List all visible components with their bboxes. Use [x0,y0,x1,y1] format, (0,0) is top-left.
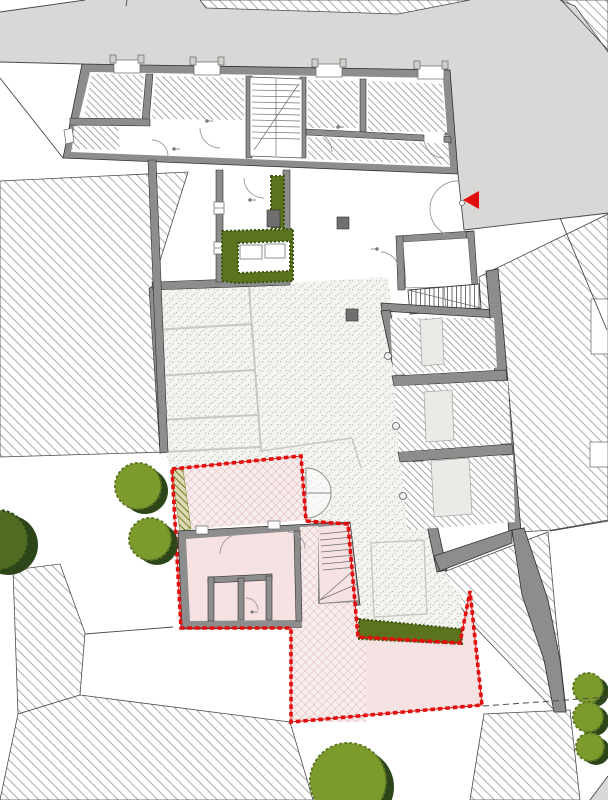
bench [240,245,262,259]
site-plan [0,0,608,800]
bench [265,244,285,258]
east-notch [590,442,608,467]
post [346,309,358,321]
tree [310,743,394,800]
neighbor-southeast-lower [470,710,580,800]
planter [267,210,280,227]
bush [573,702,608,736]
terrace-demolition [292,628,366,722]
room [368,81,446,132]
room [72,126,120,150]
main-building [63,55,458,174]
side-window [64,128,74,144]
tree [115,463,168,514]
tree [0,510,38,575]
neighbor-south [0,695,313,800]
garage-pad [431,458,472,517]
tree [129,518,178,565]
neighbor-southwest-strip [13,564,85,714]
post [337,217,349,229]
garage-pad [420,318,444,366]
bush [576,733,608,765]
existing-building [178,521,360,636]
stairwell [250,77,302,158]
room [308,80,358,128]
hedge-with-benches [222,229,293,283]
room [152,76,244,120]
garage-pad [424,390,454,442]
room [84,74,144,119]
upper-yard-demolition [172,457,305,530]
